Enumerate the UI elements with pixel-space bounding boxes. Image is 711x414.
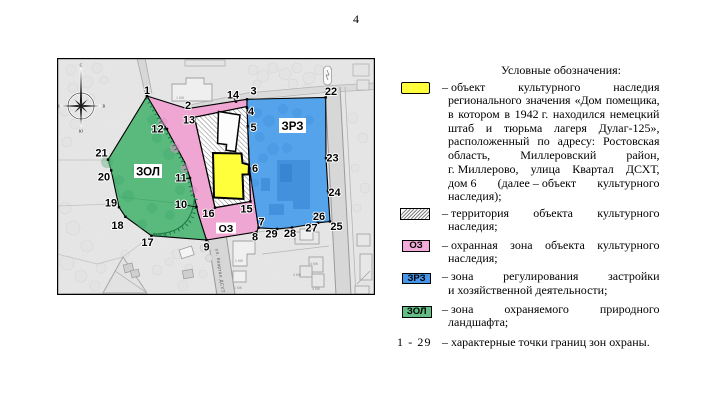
svg-text:12: 12 — [151, 124, 163, 136]
svg-text:21: 21 — [95, 148, 107, 160]
svg-text:28: 28 — [284, 228, 296, 240]
svg-text:16: 16 — [202, 208, 214, 220]
svg-text:В: В — [103, 104, 106, 109]
svg-text:26: 26 — [313, 211, 325, 223]
svg-text:4: 4 — [248, 106, 255, 118]
svg-text:14: 14 — [227, 90, 240, 102]
svg-text:23: 23 — [326, 153, 338, 165]
svg-text:4 КЖ: 4 КЖ — [293, 273, 302, 277]
svg-text:4 КЖ: 4 КЖ — [312, 287, 321, 291]
svg-text:25: 25 — [330, 221, 342, 233]
svg-text:3: 3 — [250, 86, 256, 98]
svg-text:4 КЖ: 4 КЖ — [310, 262, 319, 266]
svg-text:19: 19 — [105, 198, 117, 210]
svg-text:15: 15 — [240, 204, 252, 216]
svg-text:7: 7 — [258, 217, 264, 229]
svg-text:24: 24 — [328, 187, 341, 199]
svg-text:ЗОЛ: ЗОЛ — [136, 167, 160, 179]
svg-text:1 КЖ: 1 КЖ — [234, 286, 243, 290]
svg-text:ОЗ: ОЗ — [219, 223, 234, 235]
svg-text:20: 20 — [98, 172, 110, 184]
svg-text:С: С — [80, 63, 83, 68]
svg-text:10: 10 — [175, 199, 187, 211]
svg-text:18: 18 — [111, 220, 123, 232]
svg-text:ЗРЗ: ЗРЗ — [282, 121, 304, 133]
svg-text:5: 5 — [250, 122, 256, 134]
svg-text:17: 17 — [141, 237, 153, 249]
svg-text:2: 2 — [185, 100, 191, 112]
svg-text:6: 6 — [252, 163, 258, 175]
svg-text:13: 13 — [183, 115, 195, 127]
svg-text:1: 1 — [144, 85, 150, 97]
svg-text:8: 8 — [252, 232, 258, 244]
svg-text:22: 22 — [325, 86, 337, 98]
svg-text:1 КЖ: 1 КЖ — [176, 96, 185, 100]
svg-text:27: 27 — [305, 223, 317, 235]
svg-text:1 КЖ: 1 КЖ — [235, 259, 244, 263]
svg-text:Ю: Ю — [79, 129, 83, 134]
svg-text:9: 9 — [203, 242, 209, 254]
svg-text:11: 11 — [175, 173, 187, 185]
svg-text:29: 29 — [265, 229, 277, 241]
